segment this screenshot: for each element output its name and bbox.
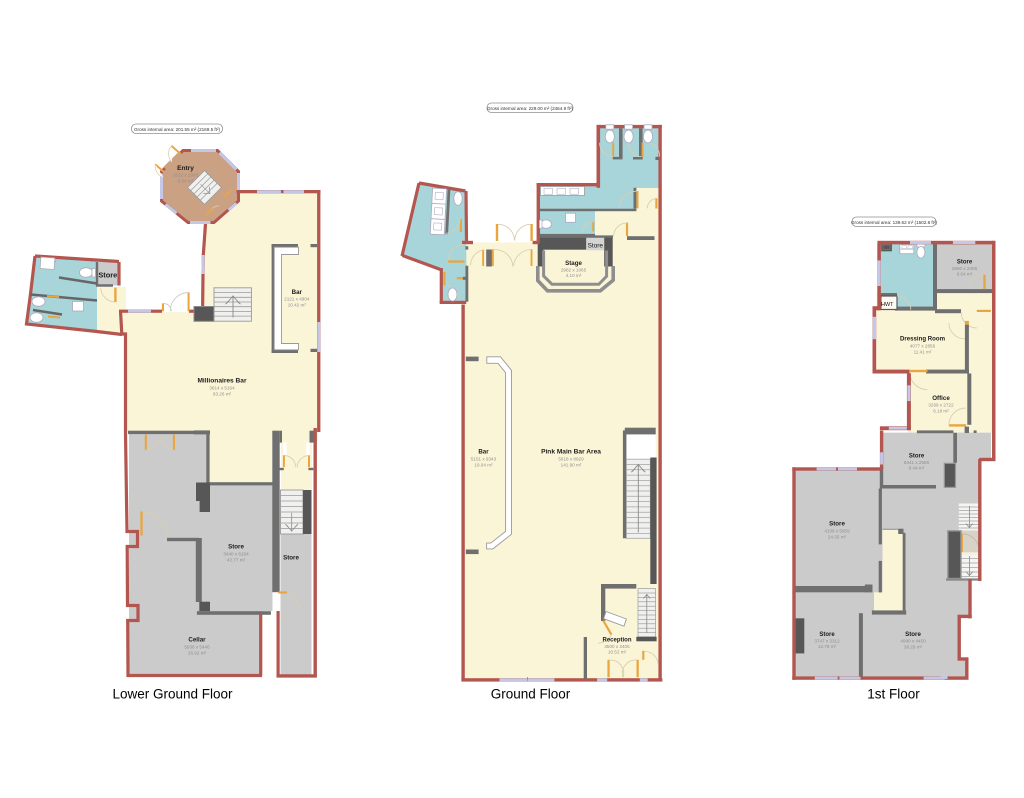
svg-text:Stage: Stage	[565, 260, 582, 267]
svg-text:12.78 m²: 12.78 m²	[818, 644, 837, 649]
svg-text:Store: Store	[905, 631, 921, 638]
svg-text:5936 x 5446: 5936 x 5446	[184, 645, 210, 650]
svg-text:2850 x 2306: 2850 x 2306	[952, 266, 978, 271]
svg-text:3269 x 2722: 3269 x 2722	[928, 403, 954, 408]
svg-text:5618 x 8929: 5618 x 8929	[558, 457, 584, 462]
svg-text:3614 x 5164: 3614 x 5164	[209, 386, 235, 391]
svg-text:2522 x 1995: 2522 x 1995	[173, 173, 199, 178]
svg-text:Gross internal area: 139.62 m²: Gross internal area: 139.62 m² (1502.8 f…	[851, 220, 938, 225]
svg-text:Bar: Bar	[478, 449, 489, 456]
svg-text:Store: Store	[829, 521, 845, 528]
svg-text:4106 x 5959: 4106 x 5959	[824, 529, 850, 534]
svg-text:24.35 m²: 24.35 m²	[828, 535, 847, 540]
svg-text:4077 x 2856: 4077 x 2856	[910, 344, 936, 349]
svg-text:19.04 m²: 19.04 m²	[474, 463, 493, 468]
svg-text:8.44 m²: 8.44 m²	[909, 466, 925, 471]
svg-text:93.26 m²: 93.26 m²	[213, 392, 232, 397]
svg-text:Gross internal area: 201.55 m²: Gross internal area: 201.55 m² (2169.5 f…	[134, 127, 221, 132]
svg-text:5151 x 9343: 5151 x 9343	[471, 457, 497, 462]
svg-text:4990 x 4450: 4990 x 4450	[900, 639, 926, 644]
svg-text:Store: Store	[819, 632, 835, 638]
svg-text:6.64 m²: 6.64 m²	[957, 271, 973, 276]
svg-text:Entry: Entry	[177, 165, 194, 172]
svg-text:Store: Store	[228, 544, 244, 551]
svg-text:Lower Ground Floor: Lower Ground Floor	[112, 687, 233, 702]
svg-text:3440 x 6164: 3440 x 6164	[223, 552, 249, 557]
svg-text:HWT: HWT	[881, 302, 894, 308]
svg-text:11.41 m²: 11.41 m²	[914, 350, 932, 355]
svg-text:2982 x 1065: 2982 x 1065	[561, 268, 587, 273]
svg-text:Office: Office	[932, 395, 950, 402]
svg-text:Store: Store	[588, 243, 604, 250]
svg-text:5441 x 2556: 5441 x 2556	[904, 460, 930, 465]
svg-text:3747 x 3312: 3747 x 3312	[814, 638, 840, 643]
svg-text:Millionaires Bar: Millionaires Bar	[197, 378, 247, 385]
svg-text:3500 x 3405: 3500 x 3405	[604, 644, 630, 649]
svg-text:6.18 m²: 6.18 m²	[933, 409, 949, 414]
svg-text:5.04 m²: 5.04 m²	[178, 179, 194, 184]
svg-text:Store: Store	[957, 260, 973, 266]
svg-text:10.52 m²: 10.52 m²	[608, 650, 627, 655]
svg-text:26.92 m²: 26.92 m²	[188, 651, 207, 656]
svg-text:Dressing Room: Dressing Room	[900, 336, 946, 343]
svg-text:Store: Store	[98, 271, 117, 280]
svg-text:Cellar: Cellar	[188, 637, 206, 644]
svg-text:10.42 m²: 10.42 m²	[288, 303, 307, 308]
svg-text:Gross internal area: 229.00 m²: Gross internal area: 229.00 m² (2464.9 f…	[487, 106, 574, 111]
svg-text:42.77 m²: 42.77 m²	[227, 558, 246, 563]
svg-text:Store: Store	[283, 555, 299, 562]
svg-text:Ground Floor: Ground Floor	[491, 687, 571, 702]
svg-text:141.90 m²: 141.90 m²	[561, 463, 582, 468]
svg-text:2121 x 4904: 2121 x 4904	[284, 297, 310, 302]
svg-text:38.28 m²: 38.28 m²	[904, 645, 923, 650]
svg-text:Pink Main Bar Area: Pink Main Bar Area	[541, 449, 601, 456]
svg-text:Reception: Reception	[602, 638, 631, 644]
svg-text:Store: Store	[909, 454, 925, 460]
svg-text:Bar: Bar	[292, 289, 303, 296]
svg-text:4.10 m²: 4.10 m²	[566, 273, 582, 278]
svg-text:1st Floor: 1st Floor	[867, 687, 920, 702]
